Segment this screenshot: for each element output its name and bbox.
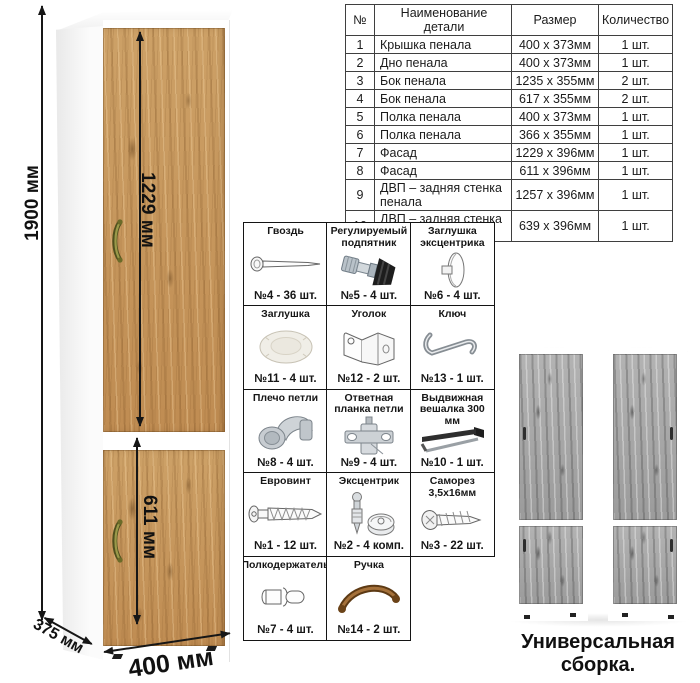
table-row: 5 Полка пенала 400 х 373мм 1 шт. (346, 108, 673, 126)
assembly-caption: Универсальная сборка. (497, 631, 699, 677)
part-size: 400 х 373мм (512, 54, 599, 72)
shelf-pin-icon (259, 571, 313, 624)
part-num: 8 (346, 162, 375, 180)
nail-icon (250, 238, 322, 291)
upper-door-handle-icon (111, 218, 125, 264)
gray-door-handle-icon (670, 539, 673, 552)
cabinet-front-face (103, 20, 230, 662)
self-tapping-screw-icon (420, 499, 484, 540)
hardware-row: Полкодержатель №7 - 4 шт. Ручка (243, 556, 493, 639)
hardware-cell-cover-cap: Заглушка №11 - 4 шт. (243, 305, 328, 390)
hardware-cell-corner-bracket: Уголок №12 - 2 шт. (326, 305, 411, 390)
part-name: Фасад (375, 162, 512, 180)
part-qty: 1 шт. (599, 144, 673, 162)
handle-icon (334, 571, 404, 624)
hardware-count: №8 - 4 шт. (257, 457, 313, 473)
part-num: 2 (346, 54, 375, 72)
part-name: Фасад (375, 144, 512, 162)
part-size: 400 х 373мм (512, 108, 599, 126)
col-header-name: Наименование детали (375, 5, 512, 36)
hardware-count: №14 - 2 шт. (337, 624, 400, 640)
part-qty: 2 шт. (599, 90, 673, 108)
hardware-name: Заглушка эксцентрика (411, 223, 494, 249)
hardware-cell-self-tapping-screw: Саморез 3,5х16мм №3 - 22 шт. (410, 472, 495, 557)
hardware-name: Заглушка (260, 306, 311, 321)
table-row: 8 Фасад 611 х 396мм 1 шт. (346, 162, 673, 180)
parts-table-header-row: № Наименование детали Размер Количество (346, 5, 673, 36)
gray-cabinet-foot (668, 615, 674, 619)
part-name: Дно пенала (375, 54, 512, 72)
hardware-count: №12 - 2 шт. (337, 373, 400, 389)
hinge-plate-icon (341, 416, 397, 457)
part-num: 7 (346, 144, 375, 162)
hardware-count: №2 - 4 комп. (334, 540, 404, 556)
part-qty: 1 шт. (599, 211, 673, 242)
part-qty: 1 шт. (599, 180, 673, 211)
hardware-cell-hinge-arm: Плечо петли №8 - 4 шт. (243, 389, 328, 474)
part-qty: 2 шт. (599, 72, 673, 90)
gray-cabinet-right (608, 347, 688, 621)
part-num: 1 (346, 36, 375, 54)
part-size: 1229 х 396мм (512, 144, 599, 162)
hardware-name: Евровинт (259, 473, 312, 488)
part-qty: 1 шт. (599, 108, 673, 126)
hardware-cell-euro-screw: Евровинт №1 - 12 шт. (243, 472, 328, 557)
cabinet-illustration: 1229 мм 611 мм (55, 10, 233, 662)
table-row: 7 Фасад 1229 х 396мм 1 шт. (346, 144, 673, 162)
part-name: Полка пенала (375, 108, 512, 126)
hardware-count: №6 - 4 шт. (424, 290, 480, 306)
gray-upper-door (613, 354, 677, 520)
hardware-cell-hinge-plate: Ответная планка петли №9 - 4 шт. (326, 389, 411, 474)
part-name: Полка пенала (375, 126, 512, 144)
hardware-name: Выдвижная вешалка 300 мм (411, 390, 494, 428)
part-name: Бок пенала (375, 72, 512, 90)
part-qty: 1 шт. (599, 162, 673, 180)
hardware-count: №3 - 22 шт. (421, 540, 484, 556)
gray-lower-door (519, 526, 583, 604)
part-num: 5 (346, 108, 375, 126)
col-header-size: Размер (512, 5, 599, 36)
hardware-row: Плечо петли №8 - 4 шт. Ответная планка п… (243, 389, 493, 472)
gray-door-handle-icon (523, 427, 526, 440)
part-qty: 1 шт. (599, 54, 673, 72)
hardware-count: №1 - 12 шт. (254, 540, 317, 556)
hardware-count: №4 - 36 шт. (254, 290, 317, 306)
part-size: 1257 х 396мм (512, 180, 599, 211)
cam-cover-icon (432, 249, 472, 290)
hardware-count: №7 - 4 шт. (257, 624, 313, 640)
table-row: 1 Крышка пенала 400 х 373мм 1 шт. (346, 36, 673, 54)
hardware-count: №11 - 4 шт. (254, 373, 316, 389)
hardware-count: №10 - 1 шт. (421, 457, 484, 473)
assembly-sheet: 1229 мм 611 мм 1900 мм 375 мм 400 мм № Н… (0, 0, 700, 683)
gray-cabinet-left (508, 347, 588, 621)
hardware-name: Регулируемый подпятник (327, 223, 410, 249)
col-header-num: № (346, 5, 375, 36)
gray-cabinet-foot (524, 615, 530, 619)
table-row: 3 Бок пенала 1235 х 355мм 2 шт. (346, 72, 673, 90)
table-row: 4 Бок пенала 617 х 355мм 2 шт. (346, 90, 673, 108)
euro-screw-icon (248, 488, 324, 541)
hardware-name: Полкодержатель (243, 557, 328, 572)
part-num: 4 (346, 90, 375, 108)
gray-cabinet-foot (570, 613, 576, 617)
table-row: 6 Полка пенала 366 х 355мм 1 шт. (346, 126, 673, 144)
part-size: 639 х 396мм (512, 211, 599, 242)
hinge-arm-icon (256, 404, 316, 457)
hardware-name: Гвоздь (266, 223, 305, 238)
part-size: 1235 х 355мм (512, 72, 599, 90)
gray-door-handle-icon (523, 539, 526, 552)
part-size: 400 х 373мм (512, 36, 599, 54)
lower-door-handle-icon (111, 518, 125, 564)
part-name: Крышка пенала (375, 36, 512, 54)
hardware-cell-handle: Ручка №14 - 2 шт. (326, 556, 411, 641)
hardware-cell-cam-cover: Заглушка эксцентрика №6 - 4 шт. (410, 222, 495, 307)
hex-key-icon (420, 321, 484, 374)
hardware-name: Ключ (437, 306, 467, 321)
hardware-cell-adjustable-foot: Регулируемый подпятник (326, 222, 411, 307)
corner-bracket-icon (338, 321, 400, 374)
hardware-row: Евровинт №1 - 12 шт. Эксцентрик (243, 472, 493, 555)
hardware-cell-cam-lock: Эксцентрик №2 - 4 комп. (326, 472, 411, 557)
table-row: 9 ДВП – задняя стенка пенала 1257 х 396м… (346, 180, 673, 211)
hardware-name: Плечо петли (252, 390, 319, 405)
hardware-count: №9 - 4 шт. (341, 457, 397, 473)
hardware-cell-shelf-pin: Полкодержатель №7 - 4 шт. (243, 556, 328, 641)
parts-table: № Наименование детали Размер Количество … (345, 4, 673, 242)
gray-lower-door (613, 526, 677, 604)
part-qty: 1 шт. (599, 36, 673, 54)
hardware-cell-nail: Гвоздь №4 - 36 шт. (243, 222, 328, 307)
hardware-row: Заглушка №11 - 4 шт. Уголок (243, 305, 493, 388)
hardware-name: Эксцентрик (338, 473, 400, 488)
hardware-grid: Гвоздь №4 - 36 шт. Регулируемый подпятни… (243, 222, 493, 639)
dim-label-lower-door: 611 мм (138, 482, 160, 572)
part-num: 3 (346, 72, 375, 90)
col-header-qty: Количество (599, 5, 673, 36)
hardware-name: Ответная планка петли (327, 390, 410, 416)
cam-lock-icon (341, 488, 397, 541)
pullout-hanger-icon (418, 427, 486, 457)
hardware-row: Гвоздь №4 - 36 шт. Регулируемый подпятни… (243, 222, 493, 305)
gray-cabinet-foot (622, 613, 628, 617)
part-size: 611 х 396мм (512, 162, 599, 180)
part-size: 617 х 355мм (512, 90, 599, 108)
part-num: 6 (346, 126, 375, 144)
hardware-count: №5 - 4 шт. (341, 290, 397, 306)
assembled-variants (506, 347, 692, 633)
part-qty: 1 шт. (599, 126, 673, 144)
hardware-cell-pullout-hanger: Выдвижная вешалка 300 мм №10 - 1 шт. (410, 389, 495, 474)
part-name: Бок пенала (375, 90, 512, 108)
hardware-cell-hex-key: Ключ №13 - 1 шт. (410, 305, 495, 390)
hardware-name: Ручка (353, 557, 385, 572)
part-num: 9 (346, 180, 375, 211)
dim-arrow-height (41, 6, 43, 620)
hardware-count: №13 - 1 шт. (421, 373, 484, 389)
dim-label-height: 1900 мм (22, 147, 44, 259)
gray-door-handle-icon (670, 427, 673, 440)
dim-label-upper-door: 1229 мм (136, 155, 158, 265)
hardware-name: Уголок (351, 306, 388, 321)
cabinet-side-panel (56, 26, 104, 660)
table-row: 2 Дно пенала 400 х 373мм 1 шт. (346, 54, 673, 72)
gray-upper-door (519, 354, 583, 520)
adjustable-foot-icon (340, 249, 398, 290)
cover-cap-icon (257, 321, 315, 374)
part-size: 366 х 355мм (512, 126, 599, 144)
hardware-name: Саморез 3,5х16мм (411, 473, 494, 499)
part-name: ДВП – задняя стенка пенала (375, 180, 512, 211)
